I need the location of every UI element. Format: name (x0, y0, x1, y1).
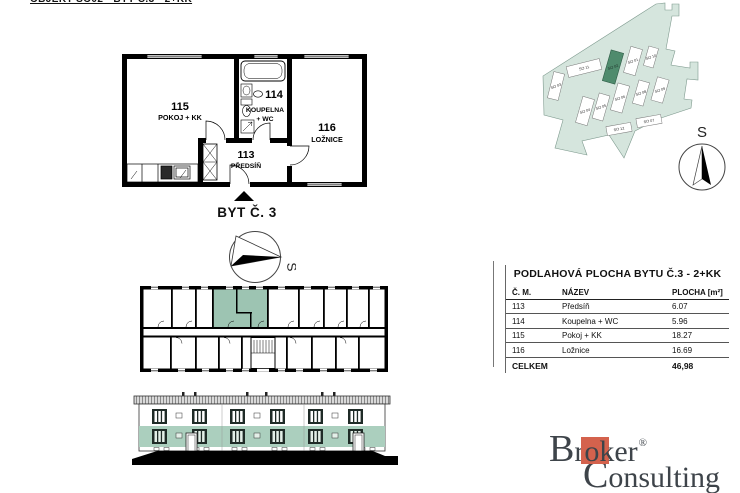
total-value: 46,98 (672, 361, 735, 371)
logo-b: B (549, 428, 574, 470)
plan-doors (206, 121, 309, 184)
col-area: PLOCHA [m²] (672, 288, 735, 298)
cell-room-number: 113 (512, 302, 562, 312)
entrance-arrow (234, 191, 254, 201)
wardrobe (203, 144, 217, 180)
total-label: CELKEM (512, 361, 562, 371)
apartment-caption: BYT Č. 3 (182, 205, 312, 220)
room-114-name-1: KOUPELNA (246, 107, 284, 114)
site-compass: S (679, 124, 725, 190)
cell-area: 18.27 (672, 331, 735, 341)
building-elevation (132, 389, 398, 473)
room-113-number: 113 (238, 149, 255, 161)
col-room-name: NÁZEV (562, 288, 672, 298)
table-row: 116 Ložnice 16.69 (506, 343, 729, 358)
cell-room-number: 116 (512, 346, 562, 356)
area-table-title: PODLAHOVÁ PLOCHA BYTU Č.3 - 2+KK (506, 265, 729, 285)
cell-room-name: Ložnice (562, 346, 672, 356)
table-total-row: CELKEM 46,98 (506, 358, 729, 373)
building-floor-plan (138, 284, 390, 374)
drawing-sheet: OBJEKT SO02 - BYT Č.3 - 2+KK (0, 0, 740, 493)
staircase (251, 338, 275, 372)
compass-rose: S (224, 227, 296, 291)
area-table-header: Č. M. NÁZEV PLOCHA [m²] (506, 285, 729, 300)
table-row: 113 Předsíň 6.07 (506, 300, 729, 315)
room-114-name-2: + WC (256, 116, 273, 123)
area-table: PODLAHOVÁ PLOCHA BYTU Č.3 - 2+KK Č. M. N… (505, 265, 729, 373)
site-area (543, 3, 698, 158)
room-115-number: 115 (171, 101, 189, 113)
col-room-number: Č. M. (512, 288, 562, 298)
registered-mark: ® (639, 437, 647, 449)
highlighted-unit (212, 289, 268, 327)
apartment-floor-plan: 115 POKOJ + KK 114 KOUPELNA + WC 116 LOŽ… (122, 54, 367, 206)
cell-room-name: Koupelna + WC (562, 317, 672, 327)
cell-area: 16.69 (672, 346, 735, 356)
room-116-number: 116 (318, 122, 336, 134)
table-row: 115 Pokoj + KK 18.27 (506, 329, 729, 344)
table-row: 114 Koupelna + WC 5.96 (506, 314, 729, 329)
ground (132, 451, 398, 465)
roof (134, 396, 390, 404)
cell-room-number: 115 (512, 331, 562, 341)
room-114-number: 114 (265, 89, 284, 101)
cell-room-name: Pokoj + KK (562, 331, 672, 341)
room-116-name: LOŽNICE (311, 135, 343, 144)
boiler-icon (254, 91, 263, 97)
sheet-border-line (493, 261, 494, 367)
cell-area: 5.96 (672, 317, 735, 327)
chimneys (182, 392, 336, 396)
cell-room-number: 114 (512, 317, 562, 327)
cell-area: 6.07 (672, 302, 735, 312)
room-115-name: POKOJ + KK (158, 113, 203, 122)
broker-consulting-logo: Broker® Consulting (549, 430, 720, 493)
compass-north-label: S (284, 262, 296, 272)
kitchen-counter (127, 164, 198, 182)
site-plan: SO 11 SO 02 SO 01 SO 10 SO 03 SO 04 SO 0… (539, 2, 731, 200)
room-113-name: PŘEDSÍŇ (231, 161, 261, 170)
cell-room-name: Předsíň (562, 302, 672, 312)
site-compass-north-label: S (697, 124, 707, 141)
object-title: OBJEKT SO02 - BYT Č.3 - 2+KK (30, 0, 192, 5)
